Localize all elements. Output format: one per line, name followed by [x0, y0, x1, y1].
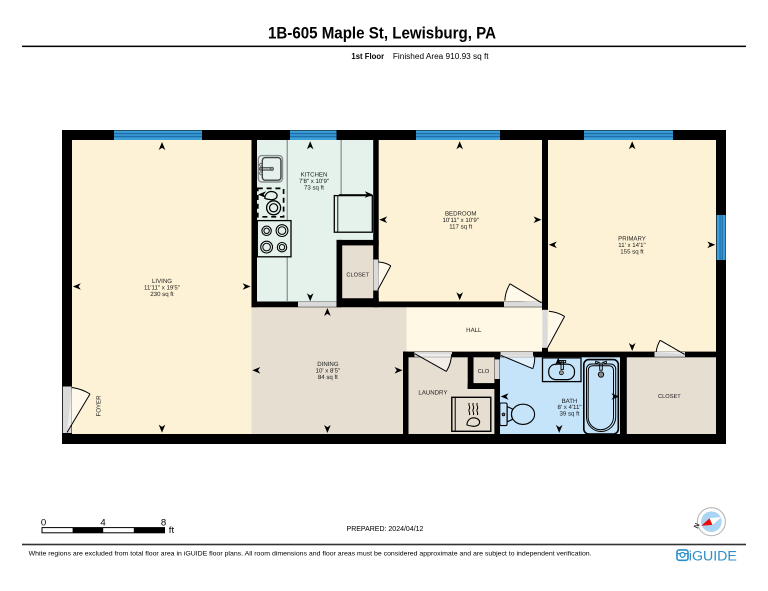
svg-text:230 sq ft: 230 sq ft: [150, 291, 174, 298]
svg-text:1st Floor: 1st Floor: [351, 52, 384, 61]
svg-text:4: 4: [100, 518, 106, 529]
svg-text:117 sq ft: 117 sq ft: [449, 224, 472, 231]
svg-text:73 sq ft: 73 sq ft: [304, 185, 324, 192]
svg-text:CLO: CLO: [478, 369, 490, 375]
svg-text:39 sq ft: 39 sq ft: [560, 411, 580, 418]
svg-text:ft: ft: [169, 525, 175, 536]
svg-text:CLOSET: CLOSET: [346, 273, 369, 279]
svg-text:84 sq ft: 84 sq ft: [318, 374, 338, 381]
svg-text:PREPARED: 2024/04/12: PREPARED: 2024/04/12: [347, 526, 424, 533]
svg-text:0: 0: [41, 518, 46, 529]
svg-text:Finished Area 910.93 sq ft: Finished Area 910.93 sq ft: [393, 52, 489, 61]
svg-text:HALL: HALL: [466, 327, 482, 334]
svg-text:CLOSET: CLOSET: [658, 394, 681, 400]
svg-text:LAUNDRY: LAUNDRY: [418, 390, 447, 397]
svg-text:155 sq ft: 155 sq ft: [620, 249, 644, 256]
svg-text:iGUIDE: iGUIDE: [689, 548, 737, 564]
svg-text:1B-605 Maple St, Lewisburg, PA: 1B-605 Maple St, Lewisburg, PA: [268, 24, 496, 42]
svg-text:8: 8: [161, 518, 166, 529]
svg-text:FOYER: FOYER: [96, 395, 103, 417]
svg-text:White regions are excluded fro: White regions are excluded from total fl…: [29, 551, 592, 558]
